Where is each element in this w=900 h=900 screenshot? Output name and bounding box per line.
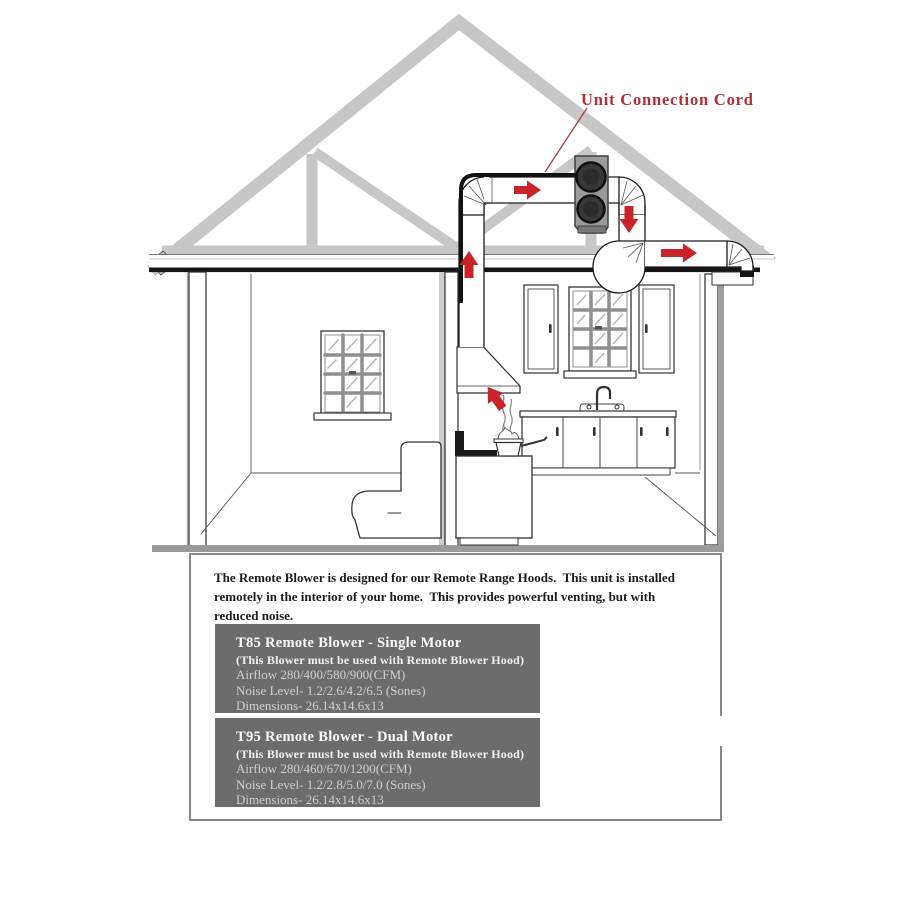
description-panel: The Remote Blower is designed for our Re… [189,553,722,821]
product-note: (This Blower must be used with Remote Bl… [236,653,540,667]
sink-and-counter [520,387,676,417]
paragraph-line: remotely in the interior of your home. T… [214,587,714,606]
window-latch [349,371,356,375]
toe-kick [527,468,670,475]
window-sill [314,413,391,420]
cabinet-handle [645,324,648,333]
range-hood [457,347,520,393]
window-latch [595,326,602,330]
product-card-t85: T85 Remote Blower - Single Motor (This B… [215,624,540,713]
pot-body [496,443,521,457]
panel-border-gap [714,716,726,746]
mounting-bracket [578,226,606,233]
left-exterior-wall [189,272,206,547]
paragraph-line: reduced noise. [214,606,714,625]
upper-cabinet-right [639,285,674,373]
steam [510,399,512,436]
lower-cabinets [522,417,675,475]
living-room [201,274,441,538]
unit-connection-cord-label: Unit Connection Cord [581,90,801,110]
product-card-t95: T95 Remote Blower - Dual Motor (This Blo… [215,718,540,807]
right-wall-shade [718,274,724,549]
remote-blower-unit [575,156,608,233]
right-exterior-wall [705,274,718,545]
island-counter [456,456,532,545]
range-backsplash [455,431,464,456]
countertop [520,411,676,417]
product-airflow: Airflow 280/400/580/900(CFM) [236,668,540,683]
product-noise: Noise Level- 1.2/2.8/5.0/7.0 (Sones) [236,778,540,793]
product-airflow: Airflow 280/460/670/1200(CFM) [236,762,540,777]
product-dimensions: Dimensions- 26.14x14.6x13 [236,793,540,808]
product-title: T85 Remote Blower - Single Motor [236,635,540,651]
product-noise: Noise Level- 1.2/2.6/4.2/6.5 (Sones) [236,684,540,699]
ground-floor-band [152,545,724,552]
food [498,427,519,439]
product-note: (This Blower must be used with Remote Bl… [236,747,540,761]
description-paragraph: The Remote Blower is designed for our Re… [214,568,714,625]
remote-blower-installation-diagram: Unit Connection Cord The Remote Blower i… [0,0,900,900]
paragraph-line: The Remote Blower is designed for our Re… [214,568,714,587]
window-sill [564,371,636,378]
upper-cabinet-left [524,285,558,373]
product-dimensions: Dimensions- 26.14x14.6x13 [236,699,540,714]
armchair [352,442,441,538]
living-room-window [314,331,391,420]
cabinet-handle [549,324,552,333]
kitchen-window [564,287,636,378]
kitchen [455,274,716,545]
product-title: T95 Remote Blower - Dual Motor [236,729,540,745]
